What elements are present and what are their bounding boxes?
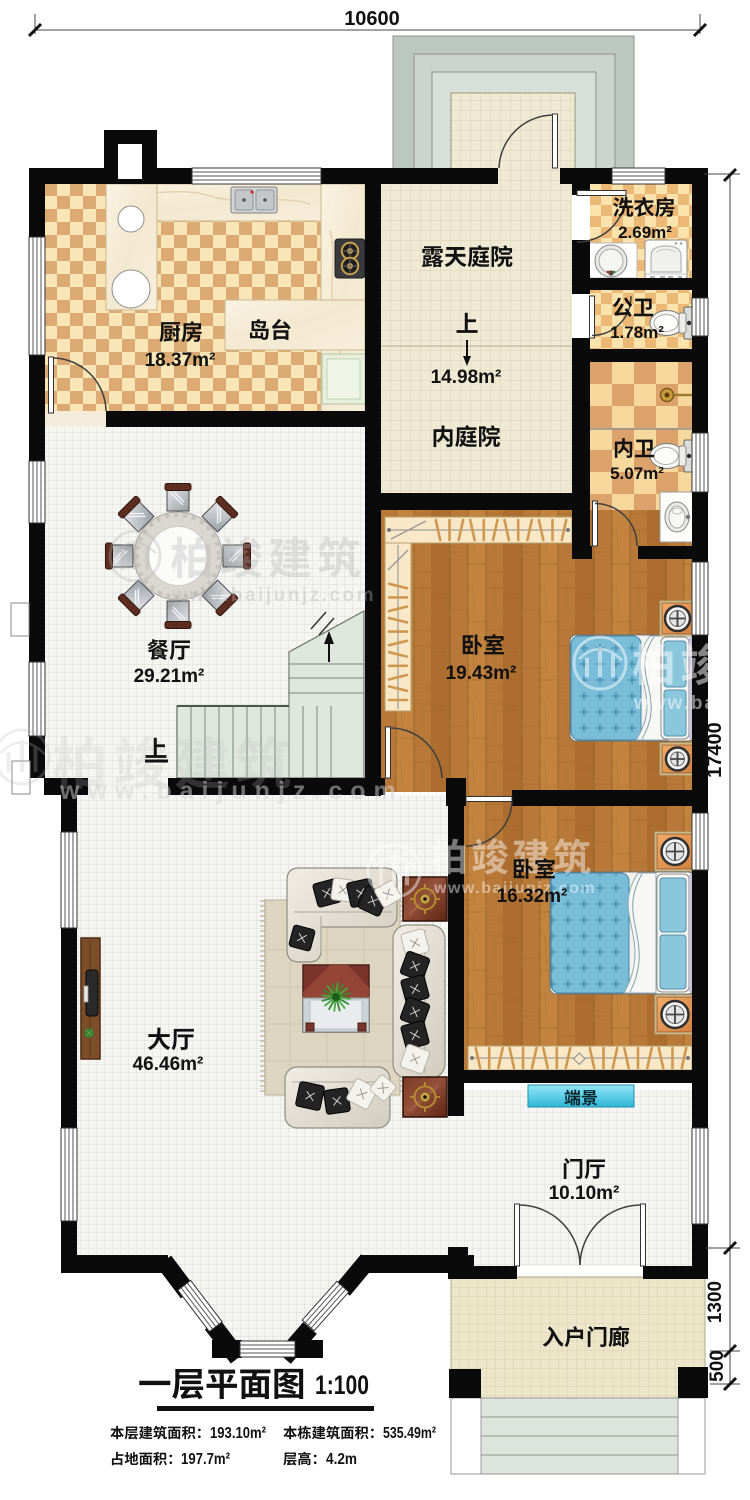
svg-text:1300: 1300 — [705, 1281, 726, 1323]
svg-text:535.49m²: 535.49m² — [383, 1425, 436, 1442]
svg-text:www.baijunjz.com: www.baijunjz.com — [59, 777, 404, 805]
svg-text:4.2m: 4.2m — [326, 1451, 357, 1468]
svg-text:29.21m²: 29.21m² — [134, 666, 205, 687]
svg-text:10.10m²: 10.10m² — [549, 1183, 620, 1204]
svg-text:193.10m²: 193.10m² — [210, 1425, 266, 1442]
svg-text:46.46m²: 46.46m² — [133, 1054, 204, 1075]
svg-text:19.43m²: 19.43m² — [446, 663, 517, 684]
svg-text:18.37m²: 18.37m² — [145, 350, 216, 371]
svg-text:2.69m²: 2.69m² — [618, 223, 672, 242]
svg-text:1.78m²: 1.78m² — [610, 323, 664, 342]
svg-text:1:100: 1:100 — [315, 1370, 369, 1400]
svg-text:www.baijunjz.com: www.baijunjz.com — [171, 585, 376, 606]
svg-text:17400: 17400 — [704, 722, 726, 778]
svg-text:16.32m²: 16.32m² — [497, 886, 568, 907]
svg-text:5.07m²: 5.07m² — [610, 464, 664, 483]
svg-text:10600: 10600 — [344, 8, 400, 30]
svg-text:197.7m²: 197.7m² — [181, 1451, 230, 1468]
svg-text:14.98m²: 14.98m² — [431, 367, 502, 388]
svg-text:500: 500 — [707, 1350, 728, 1382]
svg-text:www.baijunjz.com: www.baijunjz.com — [633, 693, 750, 714]
